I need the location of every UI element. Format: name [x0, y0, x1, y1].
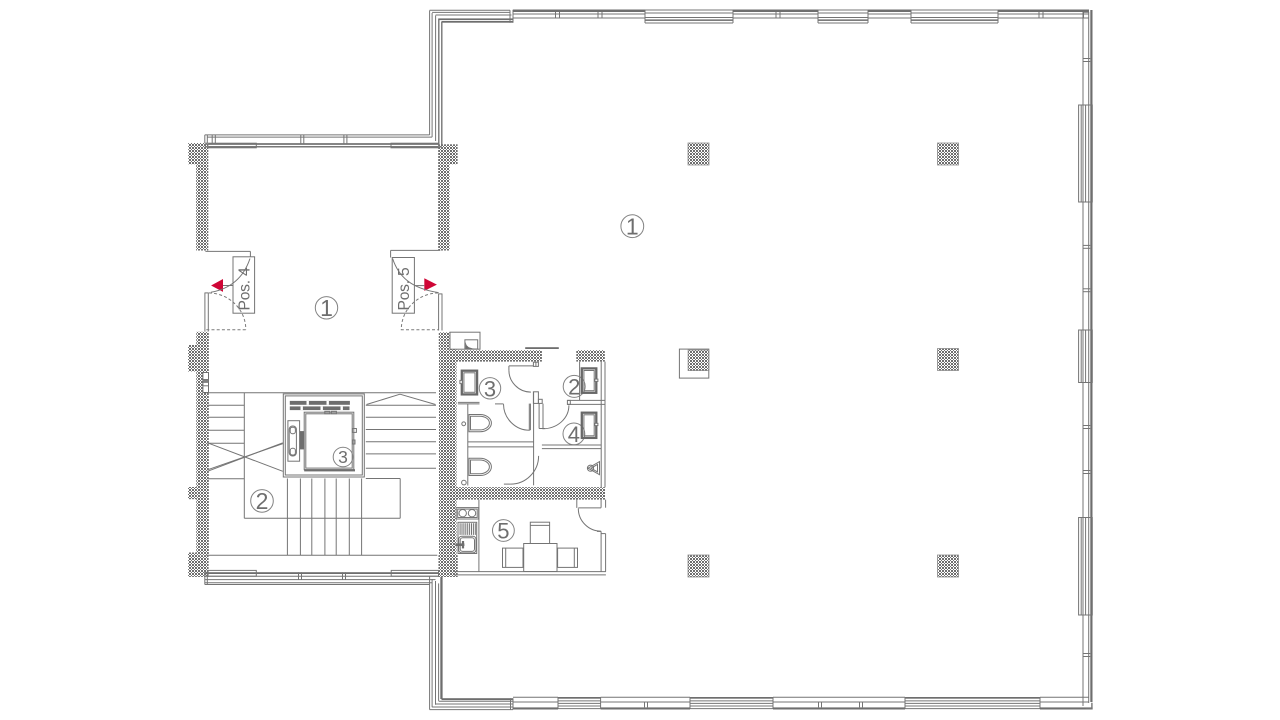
svg-text:4: 4	[568, 422, 580, 447]
svg-text:Pos. 4: Pos. 4	[236, 267, 253, 311]
svg-text:2: 2	[568, 375, 580, 400]
svg-text:1: 1	[320, 295, 333, 321]
svg-text:5: 5	[497, 519, 509, 544]
svg-text:2: 2	[256, 488, 269, 514]
svg-text:1: 1	[626, 214, 639, 240]
svg-text:3: 3	[484, 376, 496, 401]
svg-text:Pos. 5: Pos. 5	[396, 267, 413, 311]
svg-text:3: 3	[338, 447, 348, 467]
